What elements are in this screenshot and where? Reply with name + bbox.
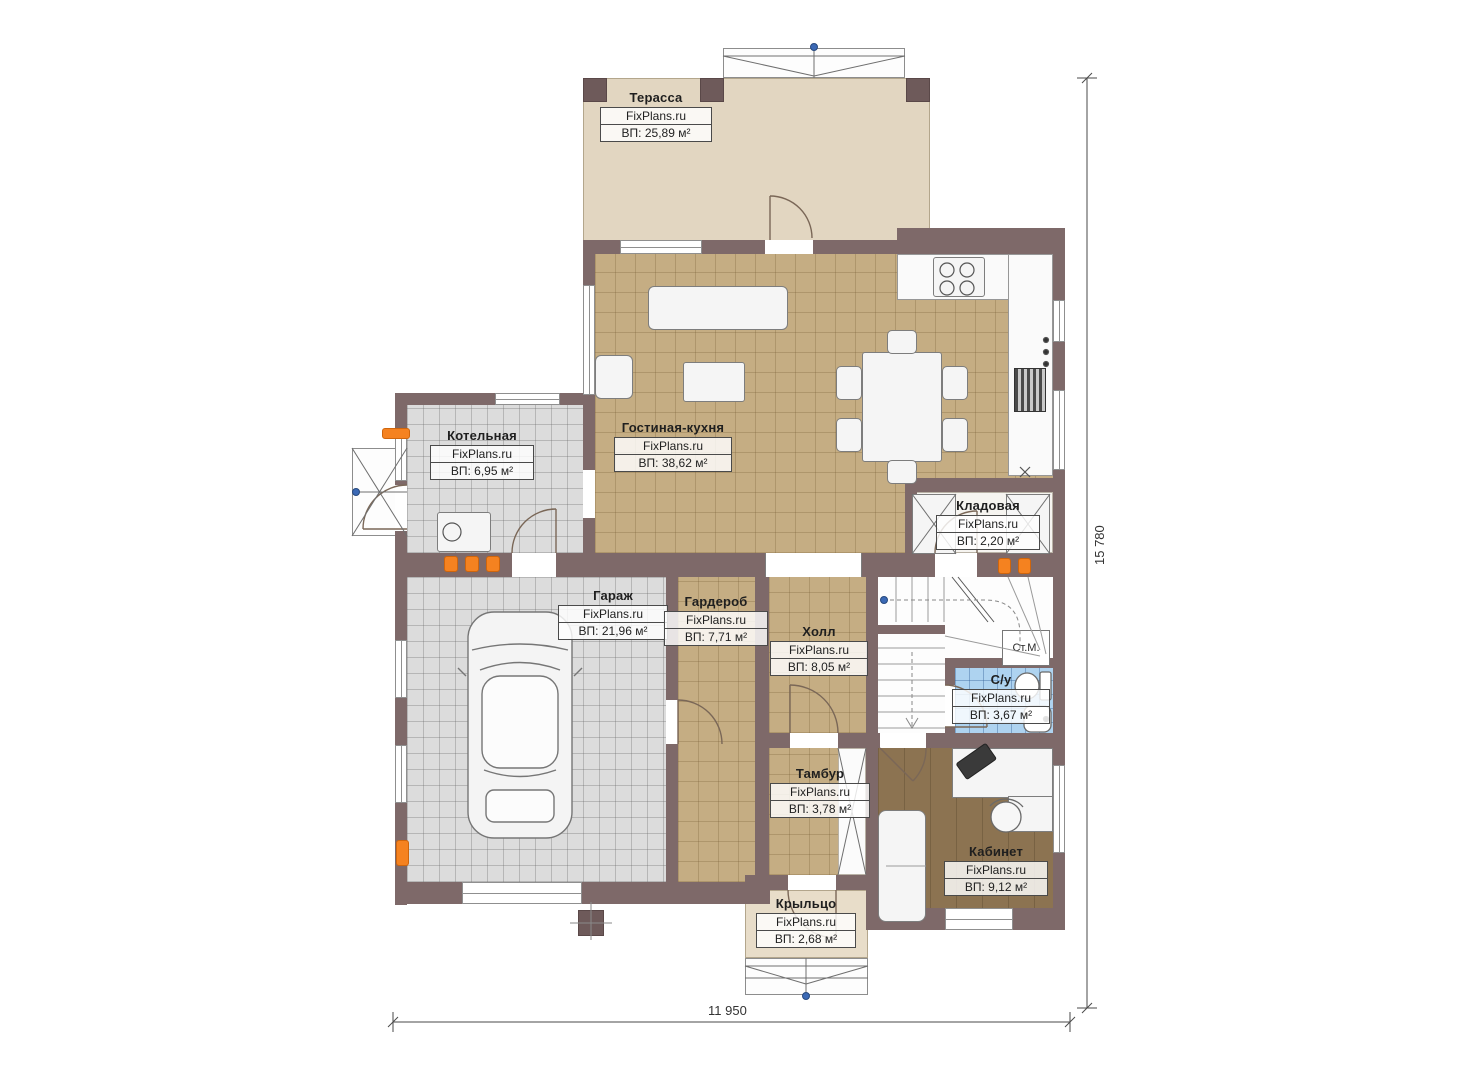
room-label-boiler: Котельная FixPlans.ru ВП: 6,95 м² <box>430 428 534 480</box>
room-title: Терасса <box>600 90 712 105</box>
room-label-wc: С/у FixPlans.ru ВП: 3,67 м² <box>952 672 1050 724</box>
room-brand: FixPlans.ru <box>757 914 855 931</box>
room-title: Гостиная-кухня <box>614 420 732 435</box>
room-area: ВП: 25,89 м² <box>601 125 711 141</box>
room-title: Кабинет <box>944 844 1048 859</box>
room-label-living: Гостиная-кухня FixPlans.ru ВП: 38,62 м² <box>614 420 732 472</box>
room-title: Котельная <box>430 428 534 443</box>
room-label-wardrobe: Гардероб FixPlans.ru ВП: 7,71 м² <box>664 594 768 646</box>
dimension-width: 11 950 <box>708 1003 747 1018</box>
room-brand: FixPlans.ru <box>937 516 1039 533</box>
room-area: ВП: 2,20 м² <box>937 533 1039 549</box>
room-brand: FixPlans.ru <box>953 690 1049 707</box>
room-area: ВП: 8,05 м² <box>771 659 867 675</box>
room-area: ВП: 3,67 м² <box>953 707 1049 723</box>
room-label-office: Кабинет FixPlans.ru ВП: 9,12 м² <box>944 844 1048 896</box>
room-label-hall: Холл FixPlans.ru ВП: 8,05 м² <box>770 624 868 676</box>
room-area: ВП: 7,71 м² <box>665 629 767 645</box>
room-area: ВП: 38,62 м² <box>615 455 731 471</box>
dimension-height: 15 780 <box>1092 525 1107 565</box>
room-title: Тамбур <box>770 766 870 781</box>
entry-marker-boiler <box>352 488 360 496</box>
room-brand: FixPlans.ru <box>615 438 731 455</box>
room-brand: FixPlans.ru <box>665 612 767 629</box>
room-area: ВП: 3,78 м² <box>771 801 869 817</box>
room-label-terrace: Терасса FixPlans.ru ВП: 25,89 м² <box>600 90 712 142</box>
room-label-tambur: Тамбур FixPlans.ru ВП: 3,78 м² <box>770 766 870 818</box>
room-area: ВП: 6,95 м² <box>431 463 533 479</box>
room-title: Гараж <box>558 588 668 603</box>
entry-marker-porch <box>802 992 810 1000</box>
car <box>458 612 582 838</box>
room-area: ВП: 9,12 м² <box>945 879 1047 895</box>
entry-marker-terrace <box>810 43 818 51</box>
room-label-porch: Крыльцо FixPlans.ru ВП: 2,68 м² <box>756 896 856 948</box>
room-title: Холл <box>770 624 868 639</box>
room-area: ВП: 2,68 м² <box>757 931 855 947</box>
room-brand: FixPlans.ru <box>431 446 533 463</box>
room-label-garage: Гараж FixPlans.ru ВП: 21,96 м² <box>558 588 668 640</box>
floor-plan: Ст.М. <box>0 0 1474 1080</box>
room-brand: FixPlans.ru <box>559 606 667 623</box>
room-title: Кладовая <box>936 498 1040 513</box>
room-title: С/у <box>952 672 1050 687</box>
room-brand: FixPlans.ru <box>771 642 867 659</box>
door-swings <box>363 196 987 938</box>
stairs-start-marker <box>880 596 888 604</box>
plan-linework <box>0 0 1474 1080</box>
room-label-storage: Кладовая FixPlans.ru ВП: 2,20 м² <box>936 498 1040 550</box>
room-brand: FixPlans.ru <box>945 862 1047 879</box>
room-brand: FixPlans.ru <box>601 108 711 125</box>
room-brand: FixPlans.ru <box>771 784 869 801</box>
room-title: Гардероб <box>664 594 768 609</box>
room-area: ВП: 21,96 м² <box>559 623 667 639</box>
room-title: Крыльцо <box>756 896 856 911</box>
